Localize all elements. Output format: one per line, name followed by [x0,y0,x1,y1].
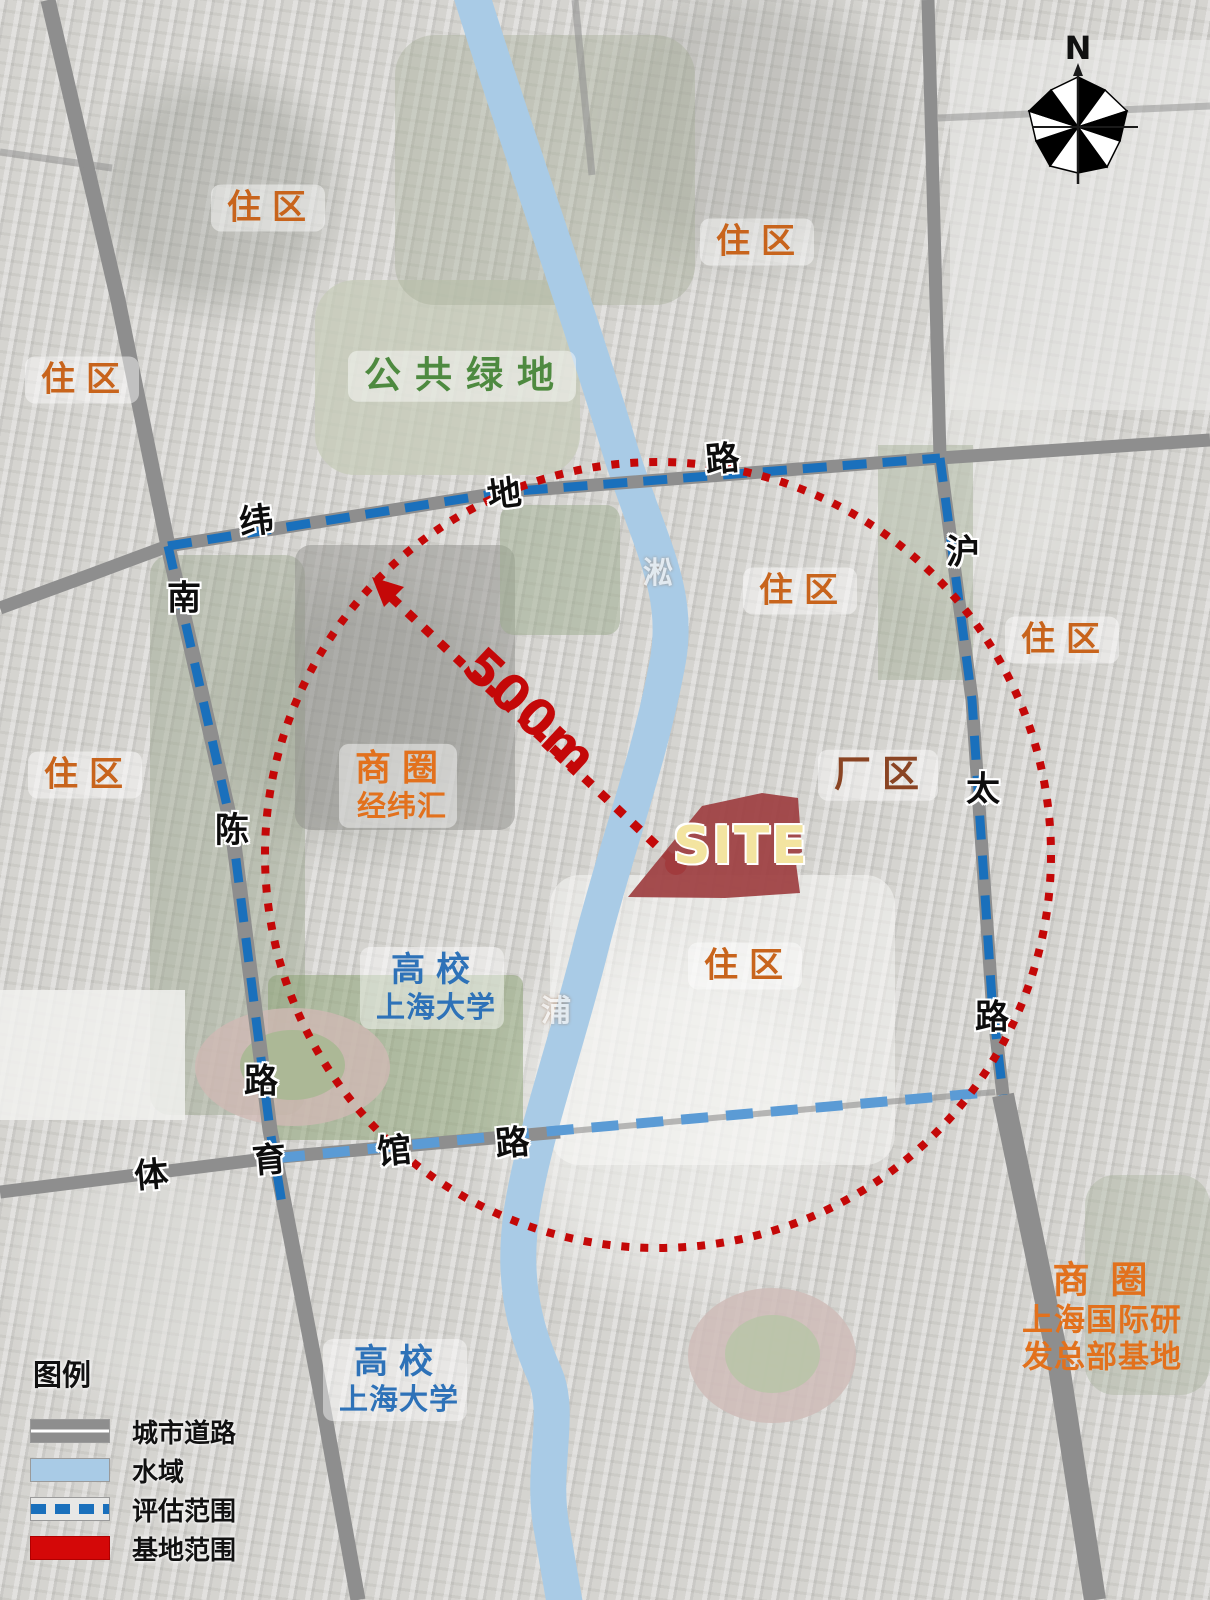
road-hutai-south [1003,1095,1095,1600]
river-path [470,0,671,1600]
compass-north-label: N [1065,29,1092,67]
road-nanchen [48,0,358,1600]
road-minor-top [575,0,592,175]
compass-rose: N [1029,29,1138,184]
road-hutai [928,0,1003,1095]
map-vector-layer: N [0,0,1210,1600]
site-analysis-map: N SITE 500m 住区 住区 住区 公共绿地 住区 住区 住区 商圈 经纬… [0,0,1210,1600]
road-minor-topleft [0,152,112,168]
